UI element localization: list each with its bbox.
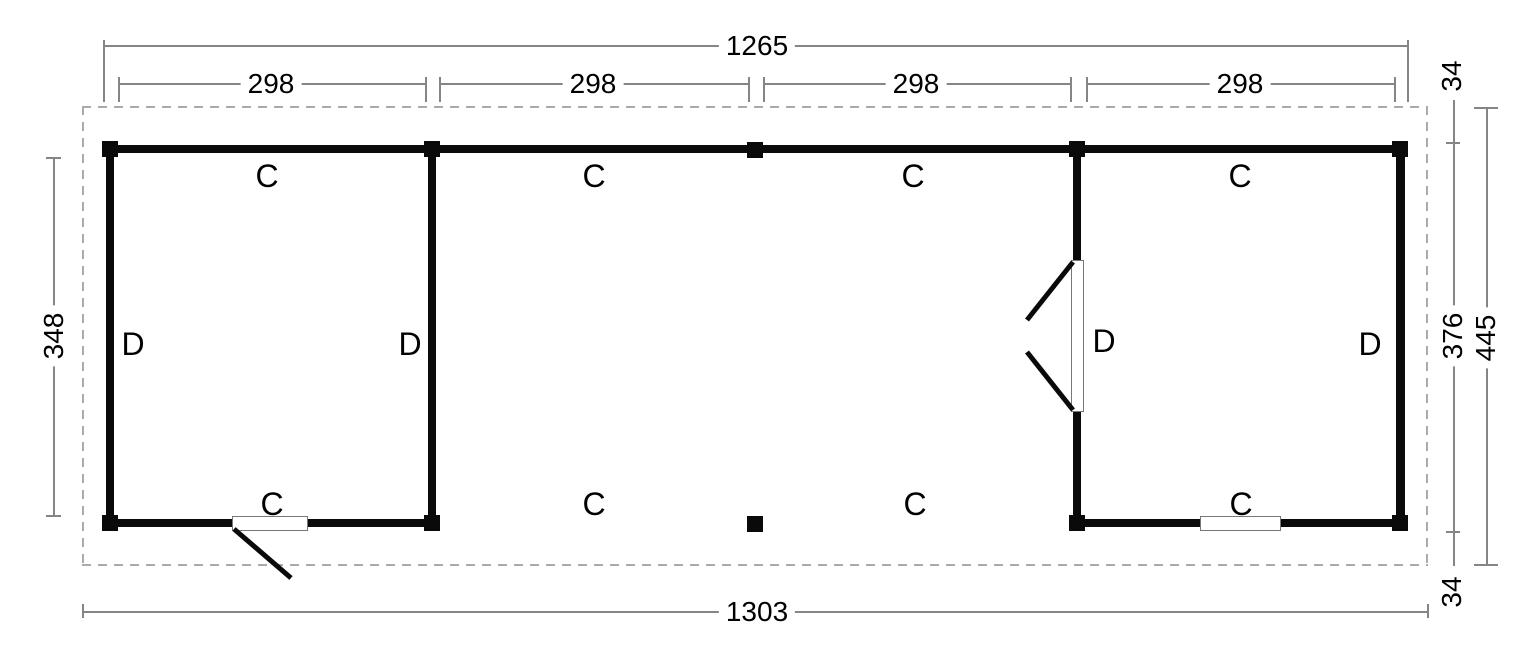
dim-tick [1427, 604, 1429, 618]
post-top-5 [1392, 141, 1408, 157]
wall-right-room-right [1396, 149, 1405, 523]
label-bottom-3: C [903, 488, 926, 520]
dim-depth-total-value: 445 [1470, 308, 1502, 369]
dim-tick [763, 77, 765, 102]
label-top-4: C [1228, 160, 1251, 192]
wall-right-room-bottom-b [1280, 519, 1405, 527]
dim-bay-3-value: 298 [886, 68, 947, 100]
wall-left-room-bottom-a [106, 519, 234, 527]
dim-tick [748, 77, 750, 102]
dim-bay-2-value: 298 [563, 68, 624, 100]
label-top-2: C [582, 160, 605, 192]
dim-tick [1474, 107, 1498, 109]
roof-outline-right [1426, 106, 1428, 566]
post-bottom-1 [102, 515, 118, 531]
post-top-4 [1069, 141, 1085, 157]
dim-tick [1407, 40, 1409, 102]
window-right-room [1200, 516, 1281, 531]
post-top-3 [747, 142, 763, 158]
dim-tick [439, 77, 441, 102]
dim-overhang-top-value: 34 [1436, 53, 1468, 98]
post-top-1 [102, 141, 118, 157]
label-side-3: D [1092, 325, 1115, 357]
dim-tick [1070, 77, 1072, 102]
dim-depth-left-value: 348 [38, 306, 70, 367]
roof-outline-left [82, 106, 84, 566]
dim-tick [46, 157, 61, 159]
post-bottom-2 [424, 515, 440, 531]
post-bottom-3-freestanding [747, 516, 763, 532]
post-bottom-5 [1392, 515, 1408, 531]
door-swing-overlay [0, 0, 1536, 647]
post-bottom-4 [1069, 515, 1085, 531]
label-bottom-2: C [582, 488, 605, 520]
dim-tick [1446, 142, 1460, 144]
wall-left-room-left [106, 149, 114, 523]
dim-width-total-value: 1303 [719, 596, 795, 628]
door-swing-left-room [234, 529, 291, 578]
dim-bay-4-value: 298 [1210, 68, 1271, 100]
label-side-2: D [398, 328, 421, 360]
label-side-1: D [121, 328, 144, 360]
door-left-room [232, 516, 308, 531]
label-top-3: C [901, 160, 924, 192]
label-top-1: C [255, 160, 278, 192]
roof-outline-top [82, 106, 1428, 108]
wall-left-room-bottom-b [307, 519, 436, 527]
double-door-right-room [1071, 260, 1084, 412]
dim-tick [1394, 77, 1396, 102]
dim-tick [425, 77, 427, 102]
dim-bay-1-value: 298 [241, 68, 302, 100]
dim-tick [1086, 77, 1088, 102]
dim-tick [118, 77, 120, 102]
label-side-4: D [1358, 328, 1381, 360]
floor-plan: 1265 298 298 298 298 1303 348 34 376 34 … [0, 0, 1536, 647]
post-top-2 [424, 141, 440, 157]
wall-right-room-left-upper [1073, 149, 1081, 261]
door-leaf-top [1027, 262, 1073, 320]
wall-right-room-bottom-a [1073, 519, 1202, 527]
dim-depth-posts-value: 376 [1437, 306, 1469, 367]
wall-left-room-right [428, 149, 436, 523]
roof-outline-bottom [82, 564, 1428, 566]
dim-tick [103, 40, 105, 102]
dim-width-posts-value: 1265 [719, 30, 795, 62]
dim-tick [82, 604, 84, 618]
wall-right-room-left-lower [1073, 411, 1081, 527]
dim-tick [1446, 531, 1460, 533]
door-leaf-bottom [1027, 352, 1073, 410]
dim-overhang-bottom-value: 34 [1436, 569, 1468, 614]
dim-tick [46, 515, 61, 517]
dim-tick [1474, 564, 1498, 566]
